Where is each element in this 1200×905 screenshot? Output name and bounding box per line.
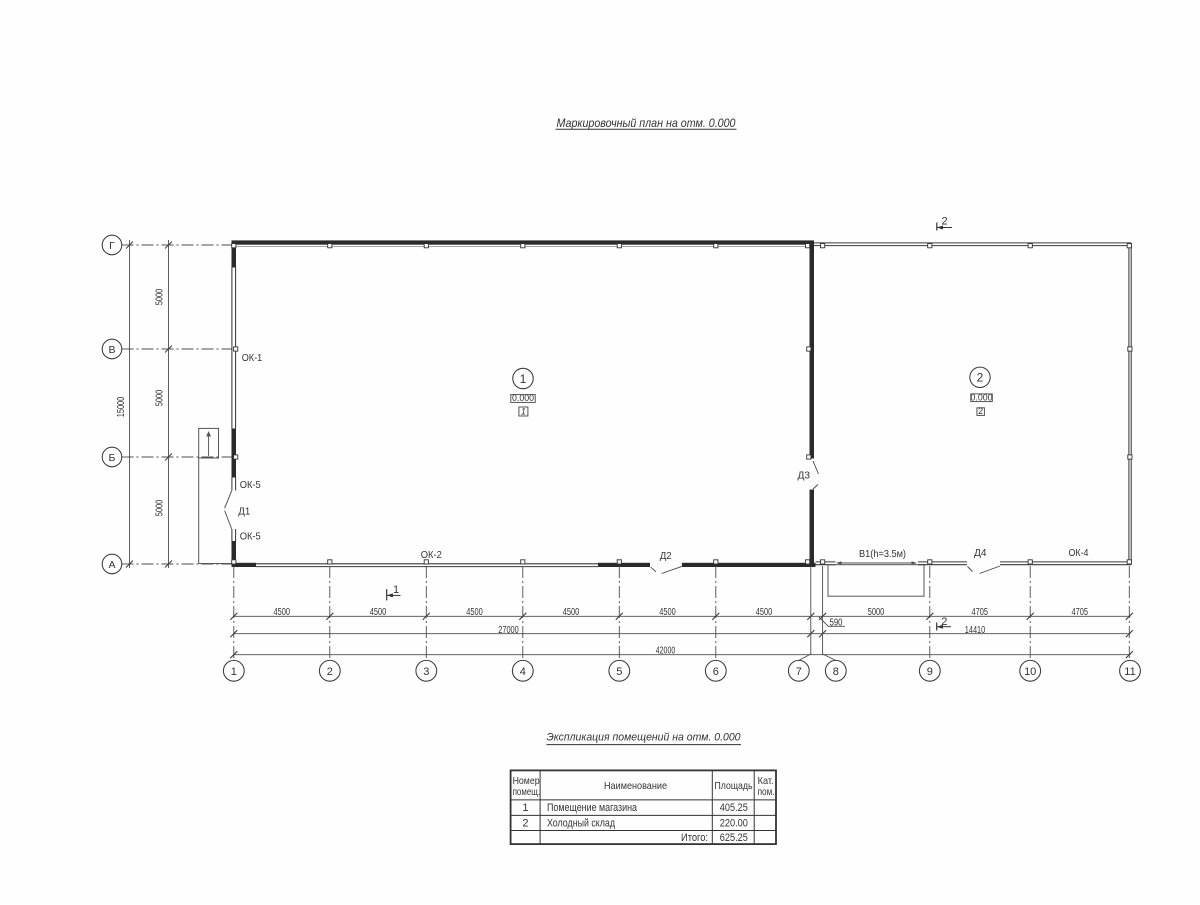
svg-text:Холодный склад: Холодный склад — [547, 818, 615, 830]
svg-text:5000: 5000 — [155, 499, 166, 516]
svg-text:ОК-4: ОК-4 — [1069, 547, 1089, 559]
svg-text:Г: Г — [109, 240, 115, 252]
svg-text:Д1: Д1 — [238, 506, 250, 518]
svg-text:Д3: Д3 — [798, 470, 811, 482]
svg-text:4500: 4500 — [563, 607, 580, 618]
svg-text:220.00: 220.00 — [720, 818, 748, 830]
svg-text:Экспликация помещений на отм.: Экспликация помещений на отм. 0.000 — [547, 732, 742, 744]
svg-text:Маркировочный план на отм. 0.: Маркировочный план на отм. 0.000 — [557, 116, 736, 130]
svg-text:2: 2 — [978, 406, 983, 416]
svg-text:4500: 4500 — [659, 607, 676, 618]
svg-text:4: 4 — [520, 666, 526, 678]
svg-text:4705: 4705 — [1072, 607, 1089, 618]
svg-text:ОК-5: ОК-5 — [240, 531, 261, 543]
svg-text:Д2: Д2 — [660, 550, 672, 562]
svg-text:2: 2 — [941, 216, 947, 228]
svg-text:ОК-2: ОК-2 — [421, 549, 442, 561]
svg-text:Д4: Д4 — [974, 547, 987, 559]
svg-text:590: 590 — [830, 617, 843, 628]
svg-text:2: 2 — [327, 666, 333, 678]
svg-text:42000: 42000 — [656, 646, 676, 657]
svg-text:4500: 4500 — [466, 607, 483, 618]
svg-text:1: 1 — [522, 802, 528, 814]
svg-text:1: 1 — [520, 372, 527, 386]
svg-text:2: 2 — [941, 616, 947, 628]
svg-text:4705: 4705 — [972, 607, 989, 618]
svg-text:625.25: 625.25 — [720, 832, 748, 844]
svg-text:7: 7 — [796, 666, 802, 678]
svg-text:Помещение магазина: Помещение магазина — [547, 802, 638, 814]
svg-text:Итого:: Итого: — [681, 832, 708, 844]
svg-text:9: 9 — [927, 666, 933, 678]
svg-text:27000: 27000 — [498, 625, 519, 636]
svg-text:4500: 4500 — [370, 607, 387, 618]
svg-text:405.25: 405.25 — [720, 802, 748, 814]
svg-text:Б: Б — [109, 452, 116, 464]
svg-text:5: 5 — [616, 666, 622, 678]
svg-text:0.000: 0.000 — [970, 392, 992, 402]
svg-text:пом.: пом. — [758, 786, 775, 798]
svg-text:3: 3 — [423, 666, 429, 678]
svg-text:ОК-1: ОК-1 — [242, 352, 263, 364]
svg-text:1: 1 — [393, 584, 399, 596]
svg-text:5000: 5000 — [155, 288, 166, 305]
svg-text:В1(h=3.5м): В1(h=3.5м) — [859, 548, 906, 560]
svg-text:4500: 4500 — [756, 607, 773, 618]
svg-text:помещ.: помещ. — [513, 786, 541, 798]
svg-text:10: 10 — [1024, 666, 1036, 678]
svg-text:1: 1 — [231, 666, 237, 678]
svg-text:5000: 5000 — [155, 389, 166, 406]
svg-text:1: 1 — [521, 406, 526, 416]
svg-text:А: А — [108, 559, 115, 571]
svg-text:Площадь: Площадь — [715, 780, 753, 792]
svg-text:В: В — [108, 344, 115, 356]
svg-text:ОК-5: ОК-5 — [240, 479, 261, 491]
svg-text:11: 11 — [1124, 666, 1135, 678]
svg-text:2: 2 — [977, 371, 984, 385]
svg-text:4500: 4500 — [274, 607, 291, 618]
svg-text:5000: 5000 — [868, 607, 885, 618]
svg-text:2: 2 — [522, 818, 528, 830]
svg-text:8: 8 — [833, 666, 839, 678]
svg-text:0.000: 0.000 — [512, 393, 534, 403]
svg-text:6: 6 — [713, 666, 719, 678]
svg-text:15000: 15000 — [116, 396, 127, 417]
svg-text:14410: 14410 — [965, 625, 986, 636]
svg-text:Наименование: Наименование — [604, 780, 667, 792]
